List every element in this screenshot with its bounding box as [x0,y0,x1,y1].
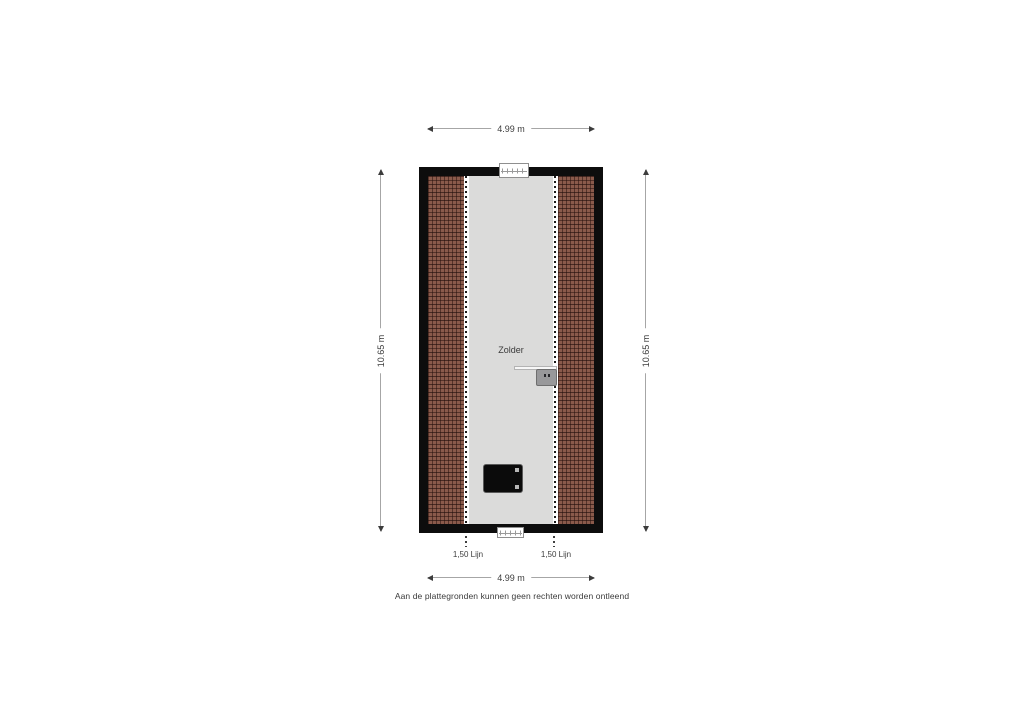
dimension-bottom-label: 4.99 m [491,573,531,583]
boiler-knob [548,374,550,377]
arrow-down-icon [378,526,384,532]
boiler-icon [536,369,557,386]
dimension-top-label: 4.99 m [491,124,531,134]
hatch-hinge [515,468,519,472]
dimension-left-label: 10.65 m [376,328,386,373]
arrow-up-icon [378,169,384,175]
dimension-left: 10.65 m [380,170,381,531]
boiler-knob [544,374,546,377]
height-line-right-label: 1,50 Lijn [526,550,586,559]
window-glazing-line [501,171,527,172]
leader-line-left [465,536,467,547]
arrow-down-icon [643,526,649,532]
disclaimer-text: Aan de plattegronden kunnen geen rechten… [0,591,1024,601]
hatch-hinge [515,485,519,489]
dimension-right-label: 10.65 m [641,328,651,373]
leader-line-right [553,536,555,547]
dimension-bottom: 4.99 m [428,577,594,578]
window-bottom [497,527,524,538]
window-glazing-line [499,533,522,534]
arrow-left-icon [427,575,433,581]
arrow-up-icon [643,169,649,175]
floorplan-page: 4.99 m 10.65 m 10.65 m Zolder [0,0,1024,724]
arrow-right-icon [589,575,595,581]
roof-hatch-icon [483,464,523,493]
arrow-right-icon [589,126,595,132]
room-label: Zolder [419,345,603,355]
window-top [499,163,529,178]
height-line-left-label: 1,50 Lijn [438,550,498,559]
arrow-left-icon [427,126,433,132]
dimension-right: 10.65 m [645,170,646,531]
dimension-top: 4.99 m [428,128,594,129]
